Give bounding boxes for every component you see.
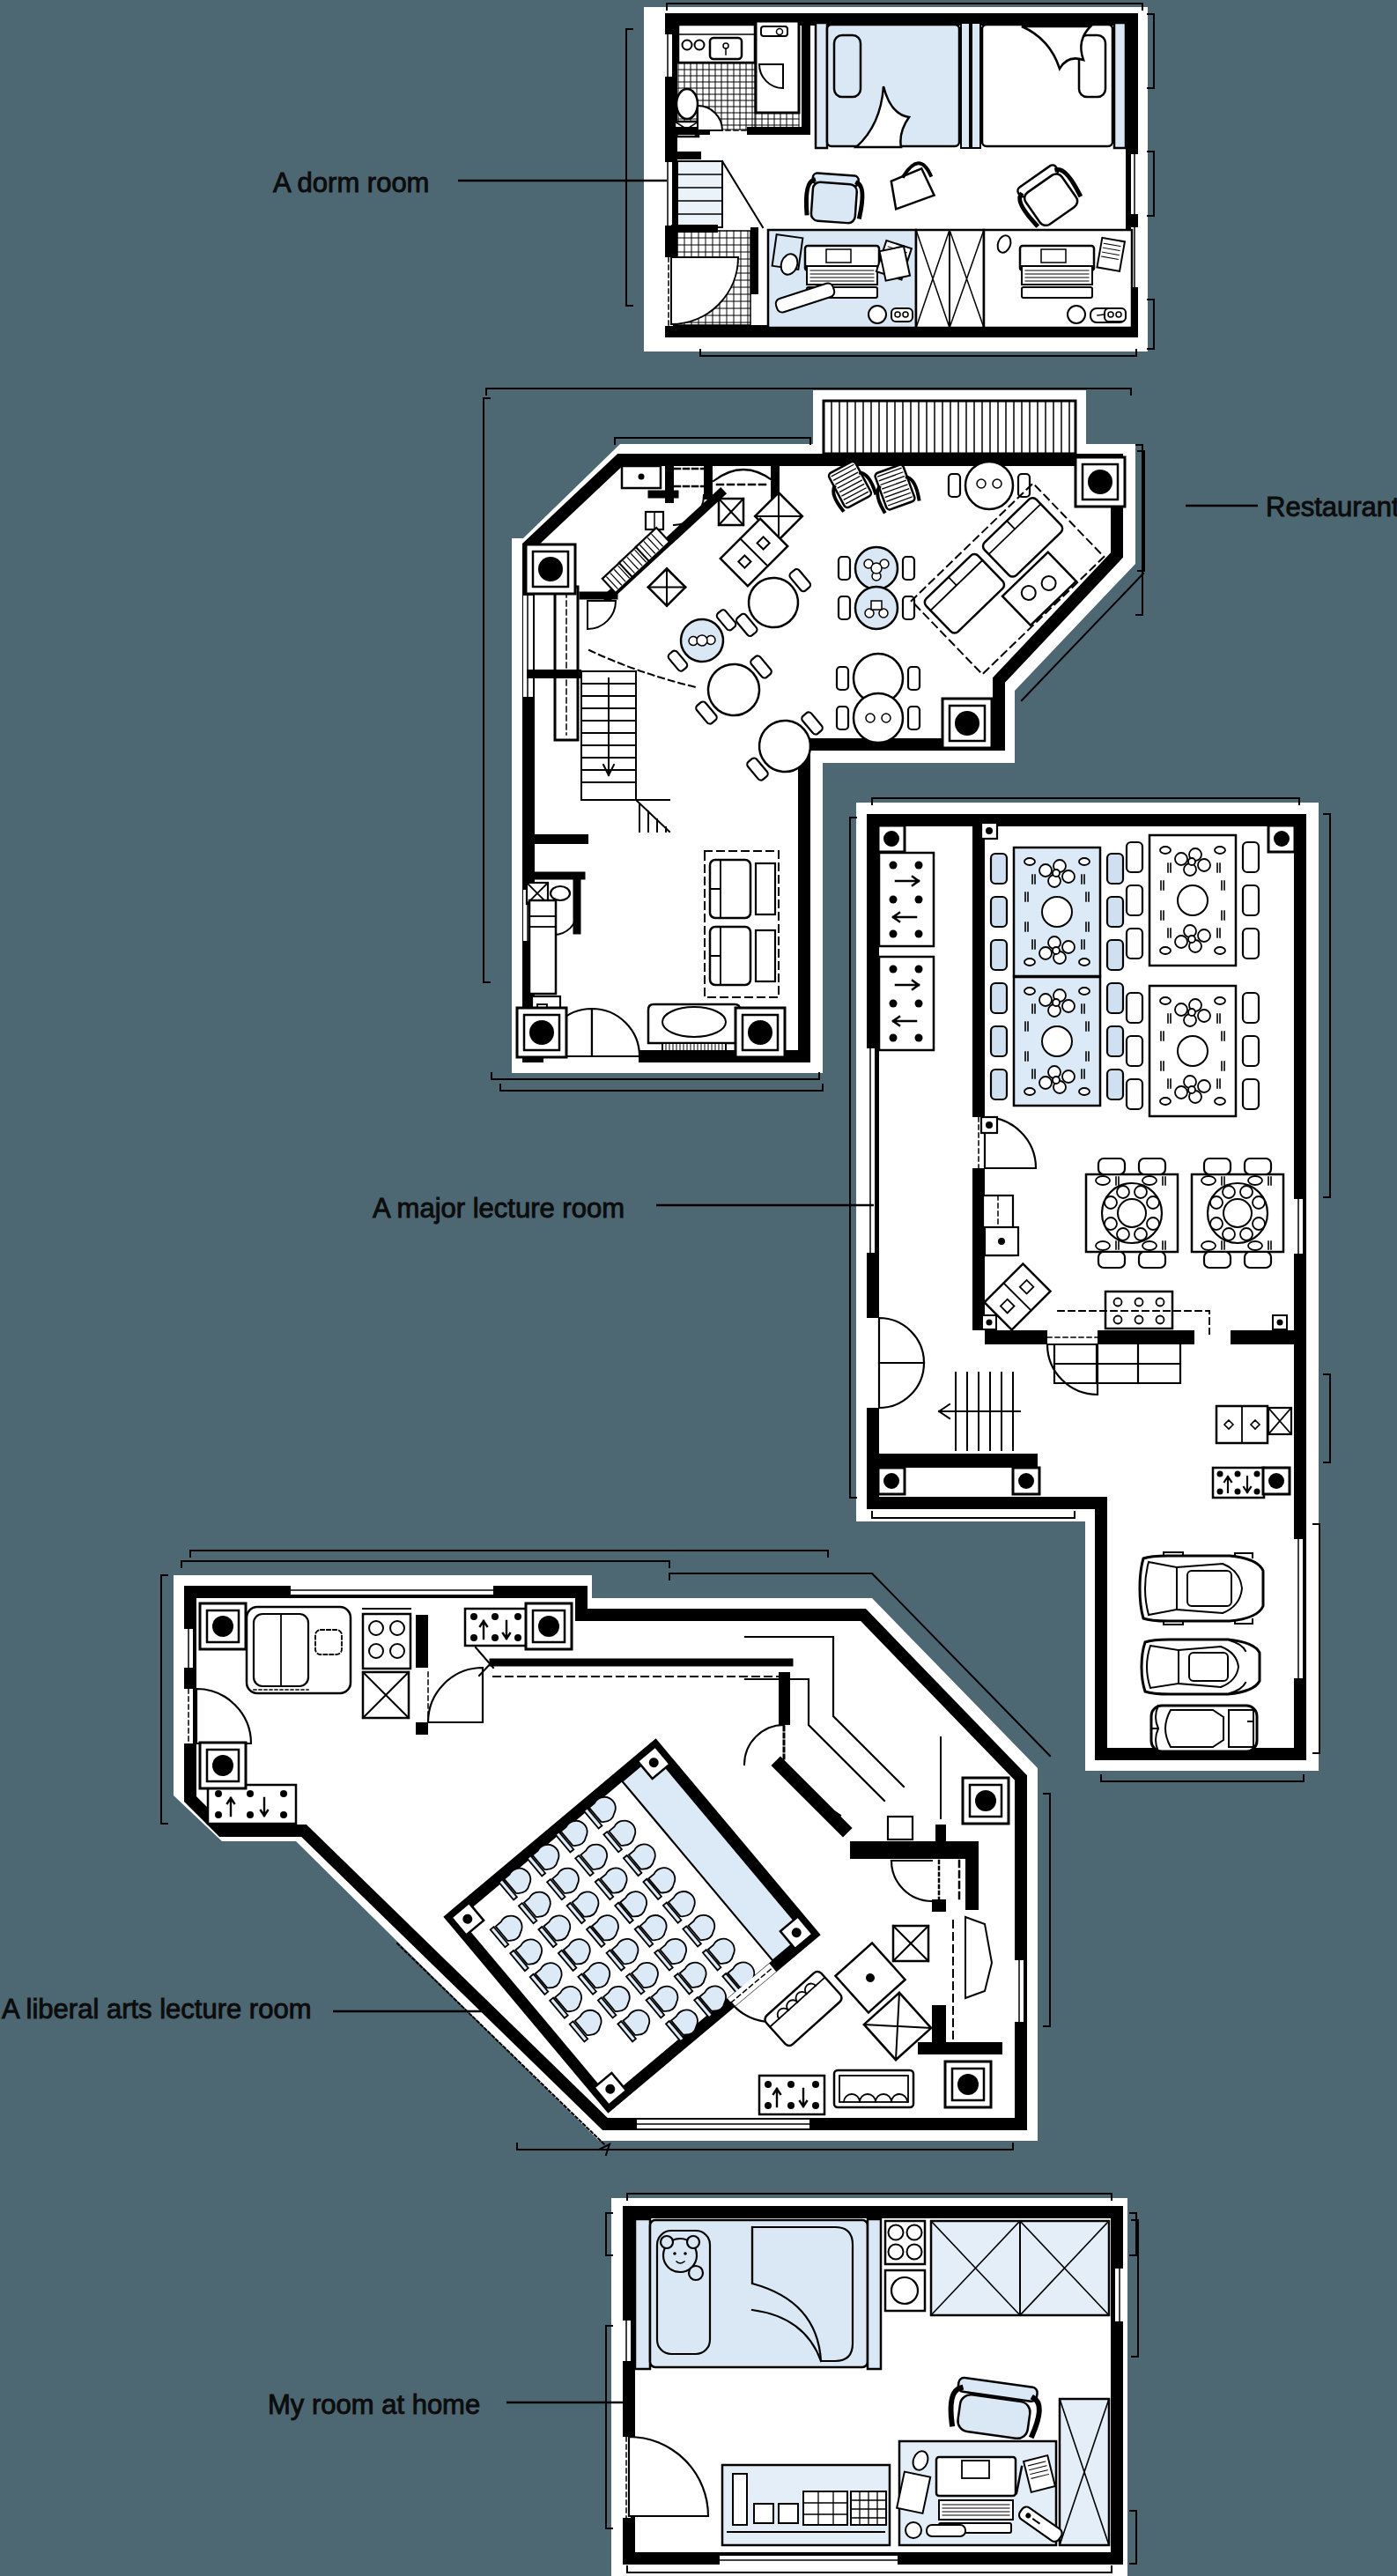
svg-text:A dorm room: A dorm room (273, 167, 429, 198)
svg-text:My room at home: My room at home (268, 2389, 480, 2420)
svg-text:A major lecture room: A major lecture room (373, 1193, 625, 1224)
svg-text:Restaurant: Restaurant (1266, 492, 1397, 522)
svg-text:A liberal arts lecture room: A liberal arts lecture room (2, 1994, 311, 2025)
